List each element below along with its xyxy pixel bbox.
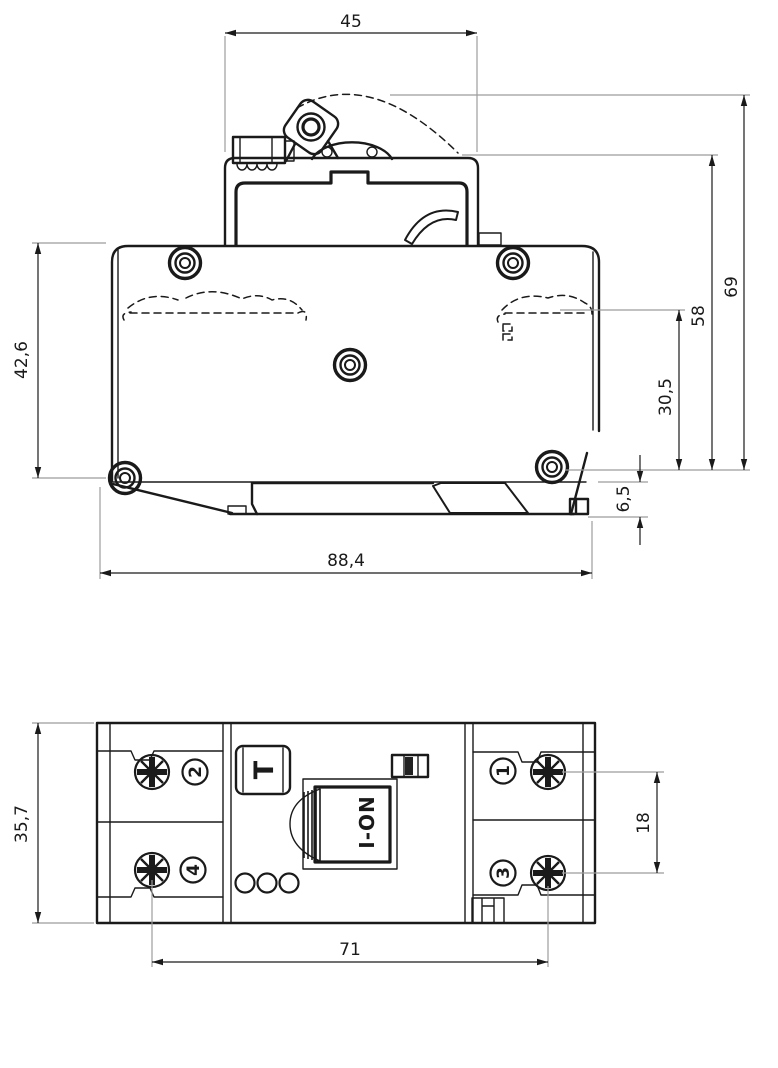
- drawing-page: 45 42,6 88,4 69 58: [0, 0, 778, 1068]
- svg-text:4: 4: [184, 864, 204, 876]
- dim-body-height-label: 42,6: [12, 341, 32, 379]
- dim-rail-offset: 6,5: [588, 455, 648, 545]
- toggle-lever: [280, 94, 458, 161]
- trip-indicator-window: [392, 755, 428, 777]
- din-clip-slot: [433, 483, 528, 513]
- dim-terminal-pitch-label: 18: [634, 812, 654, 834]
- dim-upper-height-label: 58: [689, 305, 709, 327]
- terminal-label-4: 4: [181, 858, 206, 883]
- screw-center: [335, 350, 366, 381]
- dim-mounting-distance-label: 71: [339, 940, 361, 960]
- hidden-clip-left: [123, 292, 306, 320]
- dim-clip-height: 30,5: [560, 310, 685, 470]
- test-button[interactable]: T: [236, 746, 290, 794]
- upper-housing: [225, 158, 501, 245]
- dim-top-width-label: 45: [340, 12, 362, 32]
- lever-travel-arc: [297, 94, 458, 153]
- terminal-screw-2: [135, 755, 169, 789]
- terminal-label-3: 3: [491, 861, 516, 886]
- rail-clip-end: [472, 898, 504, 923]
- screw-top-right: [498, 248, 529, 279]
- side-view: 45 42,6 88,4 69 58: [12, 12, 750, 579]
- dim-top-width: 45: [225, 12, 477, 152]
- terminal-screw-1: [531, 755, 565, 789]
- terminal-label-2: 2: [183, 760, 208, 785]
- hidden-clip-right: [497, 295, 592, 340]
- dim-total-height: 69: [390, 95, 750, 470]
- sealing-holes: [236, 874, 299, 893]
- top-view: 2 4 1 3: [12, 723, 664, 967]
- screw-bottom-right: [537, 452, 568, 483]
- terminal-label-1: 1: [491, 759, 516, 784]
- dim-total-height-label: 69: [722, 276, 742, 298]
- dim-body-height: 42,6: [12, 243, 106, 478]
- test-button-label: T: [249, 760, 280, 779]
- drawing-canvas: 45 42,6 88,4 69 58: [0, 0, 778, 1068]
- terminal-screw-3: [531, 856, 565, 890]
- rocker-switch[interactable]: I-ON: [290, 779, 397, 869]
- dim-width-label: 35,7: [12, 805, 32, 843]
- svg-text:2: 2: [186, 766, 206, 778]
- svg-text:3: 3: [494, 867, 514, 879]
- dim-terminal-pitch: 18: [562, 772, 664, 873]
- screw-bottom-left: [110, 463, 141, 494]
- curved-slot: [405, 211, 458, 244]
- dim-clip-height-label: 30,5: [656, 378, 676, 416]
- dim-rail-offset-label: 6,5: [614, 485, 634, 512]
- dim-width: 35,7: [12, 723, 94, 923]
- terminal-right-section: 1 3: [472, 752, 595, 923]
- device-outline: [97, 723, 595, 923]
- screw-top-left: [170, 248, 201, 279]
- terminal-left-section: 2 4: [97, 751, 223, 897]
- svg-text:1: 1: [494, 765, 514, 777]
- dim-overall-length-label: 88,4: [327, 551, 365, 571]
- switch-state-label: I-ON: [355, 795, 379, 848]
- top-terminal-block: [233, 137, 294, 170]
